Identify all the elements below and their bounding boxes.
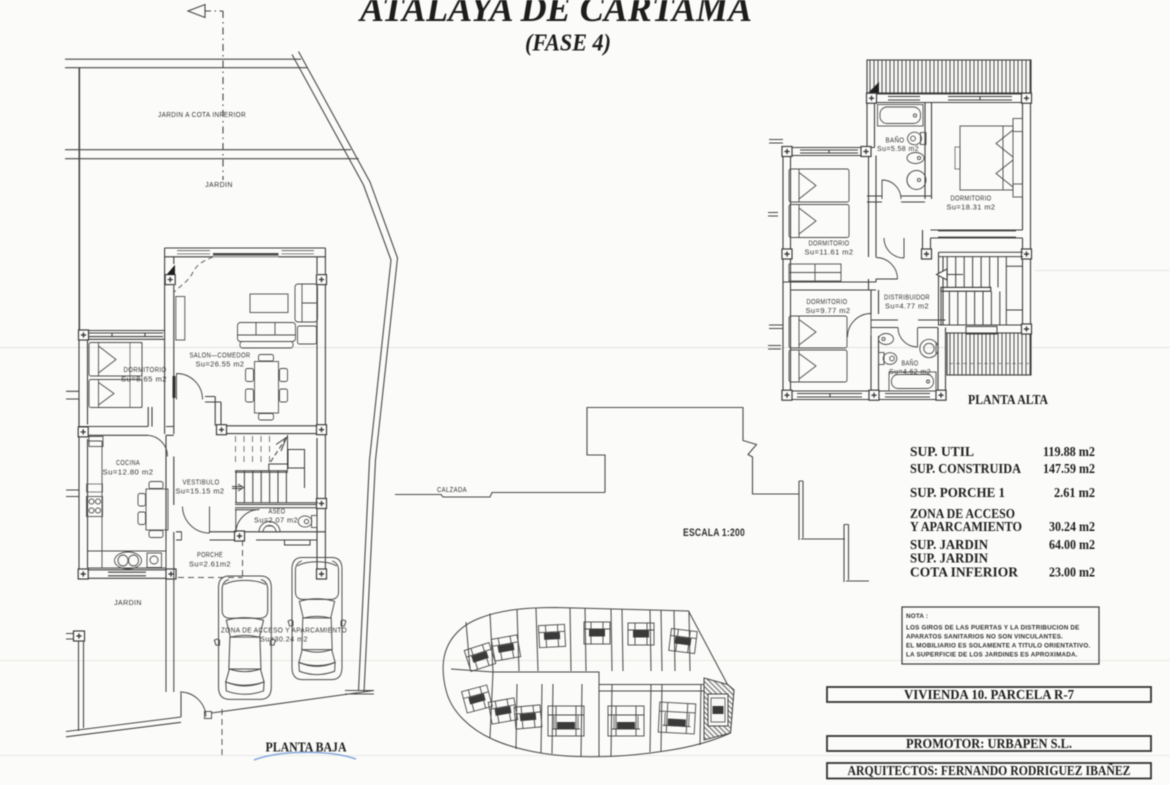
svg-text:Su=4.62 m2: Su=4.62 m2 [889, 369, 931, 376]
svg-text:SUP. PORCHE 1: SUP. PORCHE 1 [910, 485, 1005, 500]
svg-text:SUP. UTIL: SUP. UTIL [910, 444, 974, 459]
svg-text:30.24 m2: 30.24 m2 [1049, 519, 1095, 534]
svg-text:ARQUITECTOS: FERNANDO RODRIGU: ARQUITECTOS: FERNANDO RODRIGUEZ IBAÑEZ [848, 763, 1131, 778]
svg-text:Su=18.31 m2: Su=18.31 m2 [947, 205, 996, 212]
svg-text:BAÑO: BAÑO [886, 136, 905, 145]
svg-text:PLANTA ALTA: PLANTA ALTA [968, 393, 1049, 408]
svg-text:APARATOS SANITARIOS NO SON VIN: APARATOS SANITARIOS NO SON VINCULANTES. [906, 634, 1063, 641]
svg-text:PORCHE: PORCHE [197, 552, 223, 559]
svg-text:JARDIN: JARDIN [114, 600, 142, 607]
svg-text:PROMOTOR: URBAPEN S.L.: PROMOTOR: URBAPEN S.L. [906, 736, 1072, 751]
svg-text:64.00 m2: 64.00 m2 [1049, 537, 1095, 552]
svg-text:ATALAYA DE CÁRTAMA: ATALAYA DE CÁRTAMA [358, 0, 752, 30]
svg-text:23.00 m2: 23.00 m2 [1049, 565, 1095, 580]
svg-text:Su=15.15 m2: Su=15.15 m2 [176, 489, 225, 496]
svg-text:DORMITORIO: DORMITORIO [124, 367, 167, 374]
svg-text:147.59 m2: 147.59 m2 [1043, 461, 1095, 476]
svg-text:JARDIN A COTA INFERIOR: JARDIN A COTA INFERIOR [158, 112, 246, 119]
svg-text:Y APARCAMIENTO: Y APARCAMIENTO [910, 519, 1022, 534]
svg-text:PLANTA BAJA: PLANTA BAJA [266, 741, 348, 756]
svg-text:DISTRIBUIDOR: DISTRIBUIDOR [884, 295, 930, 302]
svg-text:DORMITORIO: DORMITORIO [809, 241, 850, 248]
svg-text:Su=4.77 m2: Su=4.77 m2 [885, 304, 929, 311]
svg-text:2.61 m2: 2.61 m2 [1054, 485, 1095, 500]
svg-text:SUP. CONSTRUIDA: SUP. CONSTRUIDA [910, 461, 1021, 476]
svg-text:119.88 m2: 119.88 m2 [1043, 444, 1095, 459]
svg-text:(FASE 4): (FASE 4) [525, 31, 611, 57]
svg-text:BAÑO: BAÑO [902, 359, 919, 368]
svg-text:Su=2.61m2: Su=2.61m2 [189, 562, 231, 569]
svg-text:JARDIN: JARDIN [205, 182, 233, 189]
svg-text:Su=30.24 m2: Su=30.24 m2 [260, 637, 308, 644]
svg-text:Su=8.65 m2: Su=8.65 m2 [121, 377, 167, 384]
svg-text:ZONA DE ACCESO Y APARCAMIENTO: ZONA DE ACCESO Y APARCAMIENTO [221, 628, 347, 635]
svg-text:Su=12.80 m2: Su=12.80 m2 [103, 470, 154, 477]
svg-text:Su=5.58 m2: Su=5.58 m2 [877, 146, 919, 153]
svg-text:Su=26.55 m2: Su=26.55 m2 [196, 362, 245, 369]
svg-text:VESTIBULO: VESTIBULO [183, 480, 220, 487]
svg-text:ASEO: ASEO [269, 509, 286, 516]
svg-text:DORMITORIO: DORMITORIO [807, 299, 848, 306]
svg-text:Su=11.61 m2: Su=11.61 m2 [805, 250, 854, 257]
svg-text:LA SUPERFICIE DE LOS JARDINES: LA SUPERFICIE DE LOS JARDINES ES APROXIM… [906, 652, 1078, 659]
svg-text:EL MOBILIARIO ES SOLAMENTE A T: EL MOBILIARIO ES SOLAMENTE A TITULO ORIE… [906, 643, 1090, 650]
svg-text:ESCALA 1:200: ESCALA 1:200 [683, 527, 745, 539]
svg-text:COCINA: COCINA [116, 460, 140, 467]
svg-text:SUP. JARDIN: SUP. JARDIN [910, 551, 988, 566]
svg-text:SALON—COMEDOR: SALON—COMEDOR [190, 353, 251, 360]
svg-text:Su=9.77 m2: Su=9.77 m2 [806, 308, 851, 315]
svg-text:DORMITORIO: DORMITORIO [951, 196, 992, 203]
svg-text:COTA INFERIOR: COTA INFERIOR [910, 565, 1018, 580]
svg-text:CALZADA: CALZADA [437, 487, 467, 494]
svg-text:NOTA :: NOTA : [906, 613, 928, 620]
svg-text:VIVIENDA 10. PARCELA R-7: VIVIENDA 10. PARCELA R-7 [904, 687, 1074, 702]
svg-text:LOS GIROS DE LAS PUERTAS Y LA: LOS GIROS DE LAS PUERTAS Y LA DISTRIBUCI… [906, 625, 1080, 632]
